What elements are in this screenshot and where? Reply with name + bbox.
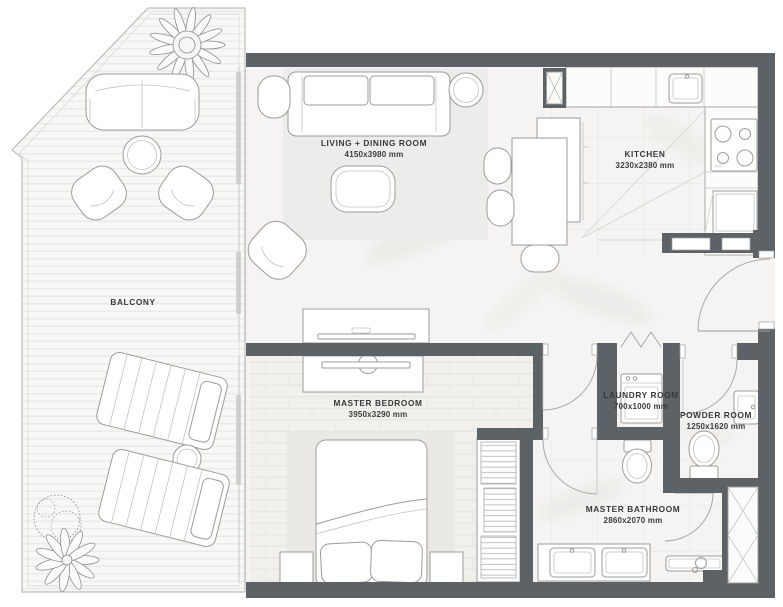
master-bathroom-dims: 2860x2070 mm	[604, 516, 663, 525]
living-coffee-table	[331, 166, 395, 212]
bedroom-tv-console	[303, 355, 423, 393]
living-side-table	[258, 76, 290, 118]
kitchen-shaft-hatch	[547, 72, 563, 104]
kitchen-label: KITCHEN	[624, 149, 665, 159]
powder-toilet	[689, 431, 719, 479]
bathroom-vanity	[538, 544, 650, 581]
master-bedroom-label: MASTER BEDROOM	[333, 398, 422, 408]
floor-plan: LIVING + DINING ROOM 4150x3980 mm KITCHE…	[0, 0, 783, 607]
powder-room-label: POWDER ROOM	[680, 410, 752, 420]
master-bathroom-label: MASTER BATHROOM	[586, 504, 681, 514]
living-round-table	[449, 73, 483, 107]
bedroom-wardrobe	[477, 438, 520, 582]
kitchen-stove	[711, 119, 757, 171]
living-sofa	[288, 72, 450, 136]
balcony-label: BALCONY	[110, 297, 155, 307]
balcony-sofa	[86, 74, 199, 130]
living-room-label: LIVING + DINING ROOM	[321, 138, 427, 148]
bedroom-nightstand-right	[430, 552, 463, 586]
duct-shaft-hatch	[728, 487, 758, 583]
kitchen-counter-top	[566, 67, 758, 107]
master-bedroom-dims: 3950x3290 mm	[349, 410, 408, 419]
floor-plan-canvas: LIVING + DINING ROOM 4150x3980 mm KITCHE…	[0, 0, 783, 607]
balcony-round-table	[123, 136, 161, 174]
kitchen-dims: 3230x2380 mm	[616, 161, 675, 170]
laundry-room-label: LAUNDRY ROOM	[603, 390, 678, 400]
bedroom-bed	[316, 440, 427, 587]
powder-room-dims: 1250x1620 mm	[687, 422, 746, 431]
kitchen-fridge	[705, 191, 757, 234]
laundry-room-dims: 700x1000 mm	[614, 402, 668, 411]
living-tv-console	[303, 309, 429, 343]
living-room-dims: 4150x3980 mm	[345, 150, 404, 159]
bathroom-toilet	[623, 440, 652, 483]
bedroom-nightstand-left	[280, 552, 313, 586]
kitchen-sink	[669, 74, 702, 103]
